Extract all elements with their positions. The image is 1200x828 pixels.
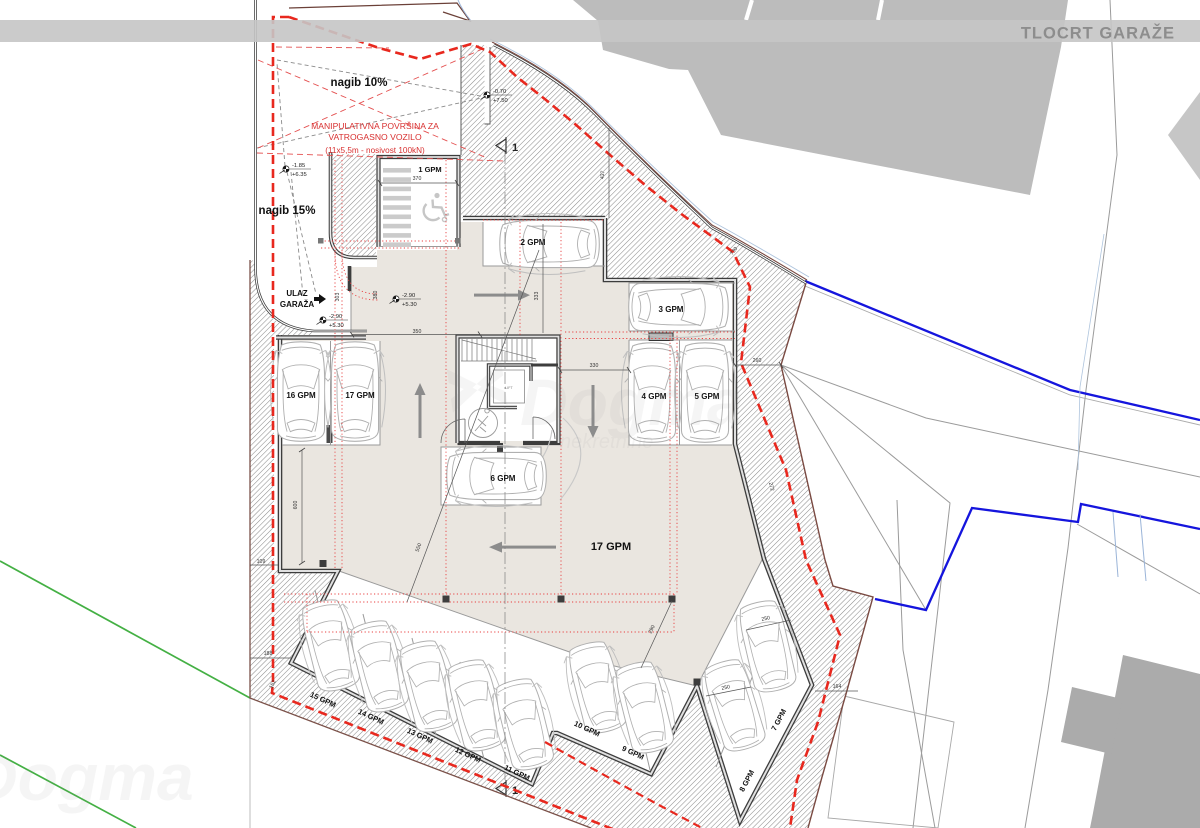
svg-text:16 GPM: 16 GPM [286, 391, 316, 400]
svg-text:164: 164 [833, 684, 842, 690]
svg-text:303: 303 [335, 293, 341, 302]
svg-text:333: 333 [534, 292, 540, 301]
svg-text:nekretnine: nekretnine [560, 431, 653, 453]
svg-text:-1.85: -1.85 [292, 163, 305, 169]
svg-text:+5.30: +5.30 [329, 323, 344, 329]
svg-text:MANIPULATIVNA POVRŠINA ZA: MANIPULATIVNA POVRŠINA ZA [311, 121, 439, 131]
svg-text:Dogma: Dogma [520, 365, 744, 439]
svg-text:17 GPM: 17 GPM [345, 391, 375, 400]
svg-text:VATROGASNO VOZILO: VATROGASNO VOZILO [328, 132, 422, 142]
svg-text:17 GPM: 17 GPM [591, 541, 631, 553]
svg-text:+7.50: +7.50 [493, 98, 508, 104]
svg-text:188: 188 [264, 651, 273, 657]
svg-text:3 GPM: 3 GPM [659, 305, 684, 314]
svg-text:1 GPM: 1 GPM [418, 165, 441, 174]
svg-text:TLOCRT GARAŽE: TLOCRT GARAŽE [1021, 24, 1175, 43]
svg-text:nagib 15%: nagib 15% [259, 205, 316, 217]
svg-text:-2.90: -2.90 [329, 314, 342, 320]
svg-text:LIFT: LIFT [505, 386, 513, 390]
svg-text:+5.30: +5.30 [402, 302, 417, 308]
svg-text:Dogma: Dogma [0, 740, 194, 814]
svg-text:1: 1 [512, 142, 518, 154]
svg-text:GARAŽA: GARAŽA [280, 300, 314, 309]
svg-text:+6.35: +6.35 [292, 172, 307, 178]
svg-text:370: 370 [413, 176, 422, 182]
svg-text:109: 109 [257, 559, 266, 565]
svg-text:260: 260 [753, 358, 762, 364]
svg-text:6 GPM: 6 GPM [491, 474, 516, 483]
svg-text:-0.70: -0.70 [493, 89, 506, 95]
svg-text:-2.90: -2.90 [402, 293, 415, 299]
svg-text:nagib 10%: nagib 10% [331, 77, 388, 89]
svg-text:2 GPM: 2 GPM [521, 238, 546, 247]
svg-text:600: 600 [293, 501, 299, 510]
svg-text:380: 380 [373, 291, 379, 300]
svg-text:437: 437 [600, 170, 607, 179]
svg-text:ULAZ: ULAZ [286, 289, 307, 298]
svg-text:350: 350 [413, 329, 422, 335]
svg-text:(11x5,5m - nosivost 100kN): (11x5,5m - nosivost 100kN) [325, 146, 425, 155]
